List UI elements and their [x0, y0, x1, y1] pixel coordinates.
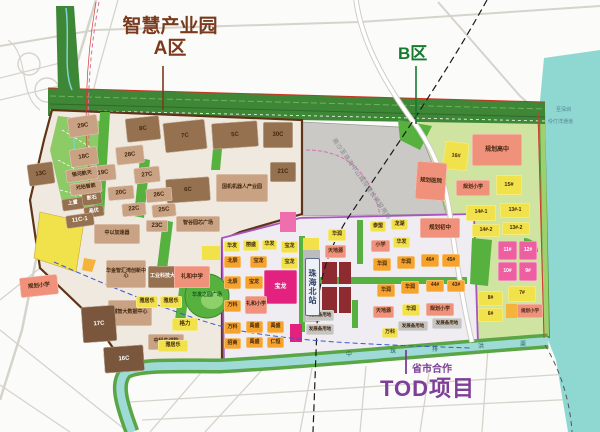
parcel: 30C: [263, 122, 293, 148]
parcel: 5C: [211, 120, 259, 149]
parcel: 天地源: [373, 306, 394, 318]
parcel: 规划小学: [19, 274, 59, 298]
station-label: 珠海北站: [305, 258, 320, 316]
parcel: 7#: [508, 286, 536, 302]
parcel: 丽盛: [243, 240, 259, 251]
river-name-char: 珠: [390, 346, 396, 355]
parcel: 11C-1: [65, 212, 95, 229]
parcel: 13#-2: [502, 222, 530, 235]
parcel: 万科: [224, 300, 241, 312]
parcel: 泰盟: [370, 221, 386, 232]
parcel: 发展备用地: [398, 321, 428, 331]
tod-title: TOD项目: [380, 376, 475, 401]
parcel: 华润: [377, 284, 395, 297]
parcel: 中以加速器: [94, 224, 140, 244]
parcel: 小学: [371, 240, 390, 252]
parcel: 14#-2: [472, 224, 500, 237]
parcel: 雅居乐: [158, 340, 188, 352]
parcel-layer: 29C8C7C5C30C28C18C13C19C27C21C6C国机机器人产业园…: [0, 0, 600, 432]
parcel: 仁恒: [267, 337, 284, 348]
parcel: 规划医院: [415, 161, 448, 201]
parcel: 13C: [27, 161, 56, 186]
parcel: 27C: [133, 166, 161, 185]
parcel: 雅居乐: [136, 296, 158, 308]
parcel: 18C: [69, 146, 99, 168]
parcel: 华润: [373, 258, 391, 271]
parcel: 宝龙: [245, 276, 263, 289]
parcel: 8C: [125, 115, 161, 142]
parcel: 北辰: [224, 276, 241, 289]
parcel: 发展备用地: [432, 318, 462, 329]
river-name-char: 渠: [520, 339, 526, 348]
parcel: 智谷园芯广场: [176, 216, 220, 232]
area-b-title: B区: [398, 44, 427, 64]
parcel: 21C: [270, 162, 296, 182]
river-name-char: 中: [346, 349, 352, 358]
parcel: 8#: [478, 291, 503, 306]
parcel: 北辰: [224, 256, 241, 268]
parcel: 12#: [519, 241, 537, 260]
parcel: 45#: [442, 254, 460, 267]
parcel: 43#: [447, 280, 465, 292]
area-a-title-line2: A区: [100, 38, 240, 60]
parcel: 华发: [393, 237, 410, 248]
parcel: 44#: [426, 280, 444, 292]
parcel: 28C: [115, 145, 145, 166]
parcel: 禹盛: [267, 321, 284, 333]
parcel: 雅居乐: [160, 296, 182, 308]
parcel: 宝龙: [264, 270, 297, 304]
parcel: 29C: [67, 114, 99, 138]
parcel: 11#: [498, 241, 517, 260]
parcel: 禹盛: [246, 321, 263, 333]
parcel: 华润: [402, 304, 420, 316]
parcel: 6#: [478, 308, 503, 322]
parcel: 万科: [382, 328, 398, 338]
parcel: 10#: [498, 262, 517, 281]
parcel: 规划初中: [420, 218, 460, 238]
parcel: 禹盛: [246, 337, 263, 348]
parcel: 15#: [496, 175, 522, 195]
parcel: 华润: [401, 281, 419, 294]
parcel: 13#-1: [500, 203, 530, 218]
parcel: 发展备用地: [306, 324, 334, 335]
parcel: 25C: [151, 203, 176, 218]
river-name-char: 排: [432, 344, 438, 353]
water-label: 至深圳: [556, 106, 571, 113]
parcel: 华金智汇湾创新中心: [106, 260, 146, 288]
tod-subtitle: 省市合作: [412, 364, 452, 376]
parcel: 华润: [328, 229, 346, 241]
parcel: 46#: [421, 254, 439, 267]
area-a-title-line1: 智慧产业园: [100, 16, 240, 38]
parcel: 20C: [107, 185, 134, 201]
parcel: 26C: [145, 187, 172, 203]
parcel: 华发: [262, 240, 277, 250]
parcel: 宝龙: [281, 241, 298, 253]
area-a-title: 智慧产业园 A区: [100, 16, 240, 60]
parcel: 宝龙: [250, 256, 267, 268]
parcel: 华润: [397, 256, 415, 269]
parcel: 华发之园广场: [188, 284, 226, 308]
parcel: 龙湖: [391, 219, 408, 230]
parcel: 规划高中: [472, 134, 522, 166]
river-name-char: 洪: [478, 341, 484, 350]
parcel: 16C: [103, 345, 145, 374]
parcel: 万科: [224, 322, 241, 334]
parcel: 华发: [224, 241, 240, 252]
parcel: 22C: [121, 202, 146, 217]
planning-map: 29C8C7C5C30C28C18C13C19C27C21C6C国机机器人产业园…: [0, 0, 600, 432]
parcel: 14#-1: [466, 205, 496, 221]
parcel: 宝龙: [281, 257, 298, 269]
parcel: 规划小学: [517, 304, 543, 318]
parcel: 天地源: [325, 245, 346, 258]
parcel: 规划小学: [456, 180, 490, 196]
parcel: 礼和小学: [245, 296, 267, 314]
parcel: 17C: [81, 305, 117, 343]
parcel: 规划小学: [426, 303, 454, 316]
water-label: 伶仃洋通道: [548, 118, 573, 125]
parcel: 国机机器人产业园: [216, 174, 268, 202]
parcel: 格力: [172, 318, 198, 331]
parcel: 7C: [163, 119, 208, 153]
parcel: 9#: [519, 262, 537, 281]
parcel: 招商: [224, 338, 241, 349]
parcel: 23C: [146, 220, 168, 232]
